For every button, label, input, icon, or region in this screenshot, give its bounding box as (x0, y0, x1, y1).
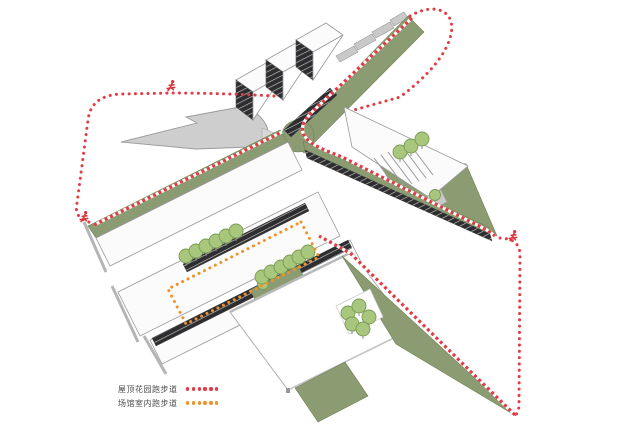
legend-line-sample-orange (186, 401, 221, 404)
legend-label: 屋顶花园跑步道 (118, 384, 178, 395)
legend: 屋顶花园跑步道 场馆室内跑步道 (118, 382, 221, 410)
legend-item-indoor-track: 场馆室内跑步道 (118, 396, 221, 410)
legend-label: 场馆室内跑步道 (118, 398, 178, 409)
runner-icon (167, 80, 175, 91)
runner-icon (509, 230, 517, 241)
legend-item-roof-track: 屋顶花园跑步道 (118, 382, 221, 396)
site-diagram-page: 屋顶花园跑步道 场馆室内跑步道 (0, 0, 632, 425)
sawtooth-unit (296, 23, 343, 80)
roof-track-line-right (500, 238, 520, 418)
legend-line-sample-red (186, 387, 221, 390)
site-axonometric-illustration (0, 0, 632, 425)
